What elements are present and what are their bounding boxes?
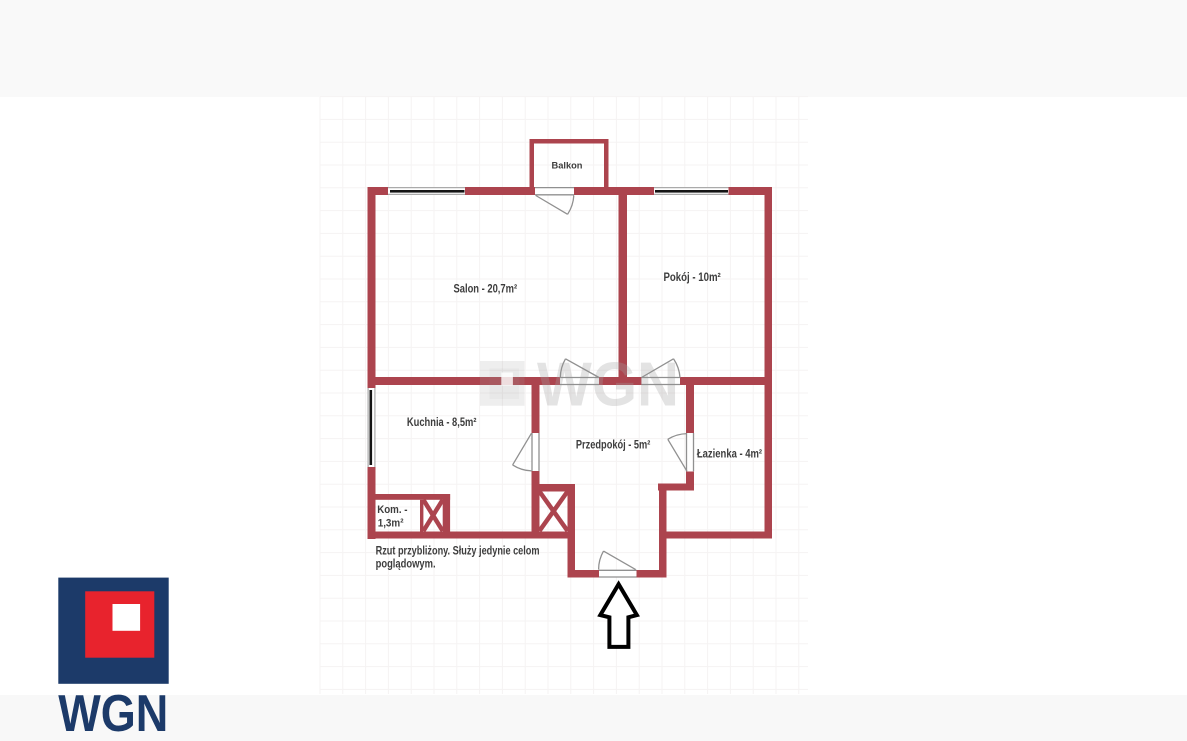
svg-text:poglądowym.: poglądowym.: [376, 557, 436, 570]
svg-text:WGN: WGN: [58, 685, 168, 741]
svg-text:Balkon: Balkon: [552, 160, 583, 171]
svg-text:Rzut przybliżony. Służy jedyni: Rzut przybliżony. Służy jedynie celom: [376, 544, 540, 558]
svg-text:Łazienka - 4m²: Łazienka - 4m²: [697, 448, 762, 461]
svg-text:Przedpokój - 5m²: Przedpokój - 5m²: [576, 438, 651, 452]
svg-text:1,3m²: 1,3m²: [378, 518, 404, 530]
svg-text:Salon - 20,7m²: Salon - 20,7m²: [454, 282, 518, 295]
svg-text:Pokój - 10m²: Pokój - 10m²: [664, 271, 722, 284]
svg-text:Kom. -: Kom. -: [377, 505, 408, 517]
svg-text:Kuchnia - 8,5m²: Kuchnia - 8,5m²: [407, 416, 477, 429]
